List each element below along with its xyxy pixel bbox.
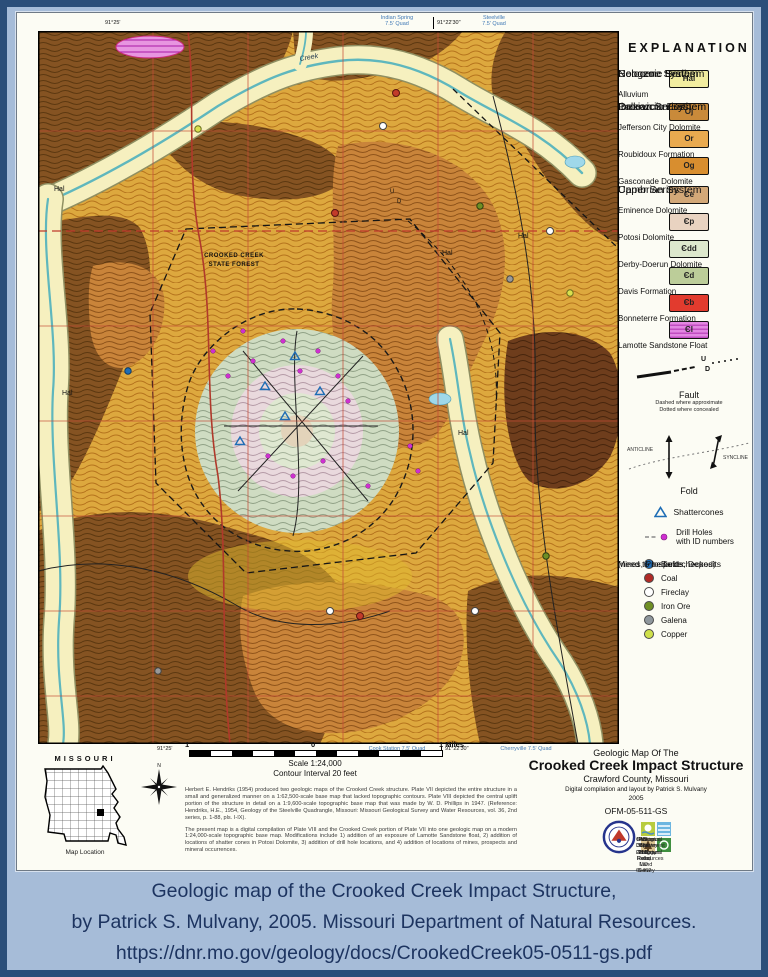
fold-symbol: ANTICLINE SYNCLINE	[623, 425, 755, 481]
compilation-credit: Digital compilation and layout by Patric…	[517, 786, 755, 793]
galena-dot	[644, 615, 654, 625]
coordinate-top: 91°22'30"	[437, 20, 461, 26]
scale-bar-block: 1 0 1 Miles Scale 1:24,000 Contour Inter…	[177, 740, 467, 782]
drill-hole-icon	[644, 532, 670, 542]
explanation-title: EXPLANATION	[618, 41, 760, 55]
svg-text:Hal: Hal	[62, 390, 73, 397]
mine-item-copper: Copper	[644, 629, 760, 639]
unit-swatch-cl: Єl	[669, 321, 709, 339]
inset-caption: Map Location	[65, 849, 104, 856]
corner-coordinate-top-left: 91°25'	[105, 20, 121, 26]
publication-number: OFM-05-511-GS	[517, 806, 755, 816]
scale-bar	[189, 750, 443, 757]
svg-text:Hal: Hal	[518, 233, 529, 240]
svg-text:N: N	[157, 763, 161, 769]
svg-text:D: D	[397, 199, 402, 205]
svg-text:D: D	[705, 366, 710, 373]
lamotte-float-patch	[116, 36, 184, 58]
scale-label: Scale 1:24,000	[177, 759, 453, 768]
notes-paragraph-2: The present map is a digital compilation…	[185, 827, 517, 855]
coal-dot	[644, 573, 654, 583]
svg-text:Hal: Hal	[458, 430, 469, 437]
svg-text:U: U	[701, 356, 706, 363]
caption-line-3: https://dnr.mo.gov/geology/docs/CrookedC…	[7, 938, 761, 969]
contour-interval-label: Contour Interval 20 feet	[177, 769, 453, 778]
missouri-state-shape	[45, 766, 126, 845]
unit-swatch-or: Or	[669, 130, 709, 148]
drill-holes-row: Drill Holes with ID numbers	[618, 528, 760, 546]
shattercones-row: Shattercones	[618, 506, 760, 518]
unit-swatch-cp: Єp	[669, 213, 709, 231]
svg-text:Hal: Hal	[54, 186, 65, 193]
svg-text:SYNCLINE: SYNCLINE	[723, 455, 749, 461]
inset-title: MISSOURI	[54, 754, 115, 763]
svg-text:U: U	[390, 189, 394, 195]
geological-survey-seal-icon	[602, 820, 636, 854]
geologic-map: Hal Hal Hal Hal Hal CROOKED CREEK STATE …	[38, 31, 619, 744]
caption-line-2: by Patrick S. Mulvany, 2005. Missouri De…	[7, 907, 761, 938]
county-subtitle: Crawford County, Missouri	[517, 774, 755, 784]
caption-line-1: Geologic map of the Crooked Creek Impact…	[7, 876, 761, 907]
quad-label-steelville: Steelville 7.5' Quad	[465, 15, 523, 27]
notes-paragraph-1: Herbert E. Hendriks (1954) produced two …	[185, 787, 517, 822]
map-notes: Herbert E. Hendriks (1954) produced two …	[185, 787, 517, 859]
svg-text:STATE FOREST: STATE FOREST	[209, 262, 260, 268]
quad-divider-tick-top	[433, 17, 434, 29]
unit-swatch-cd: Єd	[669, 267, 709, 285]
unit-swatch-og: Og	[669, 157, 709, 175]
compass-rose-icon: N	[141, 763, 177, 805]
fault-label: Fault	[618, 390, 760, 400]
mine-item-fireclay: Fireclay	[644, 587, 760, 597]
crawford-county-marker	[97, 809, 104, 816]
figure-caption: Geologic map of the Crooked Creek Impact…	[7, 876, 761, 969]
mine-item-iron-ore: Iron Ore	[644, 601, 760, 611]
svg-text:ANTICLINE: ANTICLINE	[627, 447, 654, 453]
copper-dot	[644, 629, 654, 639]
iron-ore-dot	[644, 601, 654, 611]
svg-text:Hal: Hal	[442, 250, 453, 257]
map-title: Crooked Creek Impact Structure	[517, 758, 755, 773]
fault-symbol: U D	[629, 351, 749, 385]
agency-logos-row: Missouri Department of Natural Resources…	[517, 820, 755, 854]
mine-item-galena: Galena	[644, 615, 760, 625]
fault-subnote2: Dotted where concealed	[618, 407, 760, 414]
page-background: Hal Hal Hal Hal Hal CROOKED CREEK STATE …	[7, 7, 761, 970]
map-sheet: Hal Hal Hal Hal Hal CROOKED CREEK STATE …	[16, 12, 753, 871]
explanation-panel: EXPLANATION Cenozoic Erathem Neogene Sys…	[618, 35, 760, 639]
unit-label: Alluvium	[618, 90, 648, 99]
svg-text:CROOKED CREEK: CROOKED CREEK	[204, 253, 264, 259]
unit-swatch-cdd: Єdd	[669, 240, 709, 258]
fold-label: Fold	[618, 486, 760, 496]
missouri-inset: MISSOURI Map Location N	[23, 749, 185, 865]
shatter-cone-icon	[654, 506, 667, 518]
unit-swatch-cb: Єb	[669, 294, 709, 312]
quad-label-indian-spring: Indian Spring 7.5' Quad	[365, 15, 429, 27]
publication-year: 2005	[517, 795, 755, 802]
fireclay-dot	[644, 587, 654, 597]
title-block: Geologic Map Of The Crooked Creek Impact…	[517, 743, 755, 854]
mine-item-coal: Coal	[644, 573, 760, 583]
